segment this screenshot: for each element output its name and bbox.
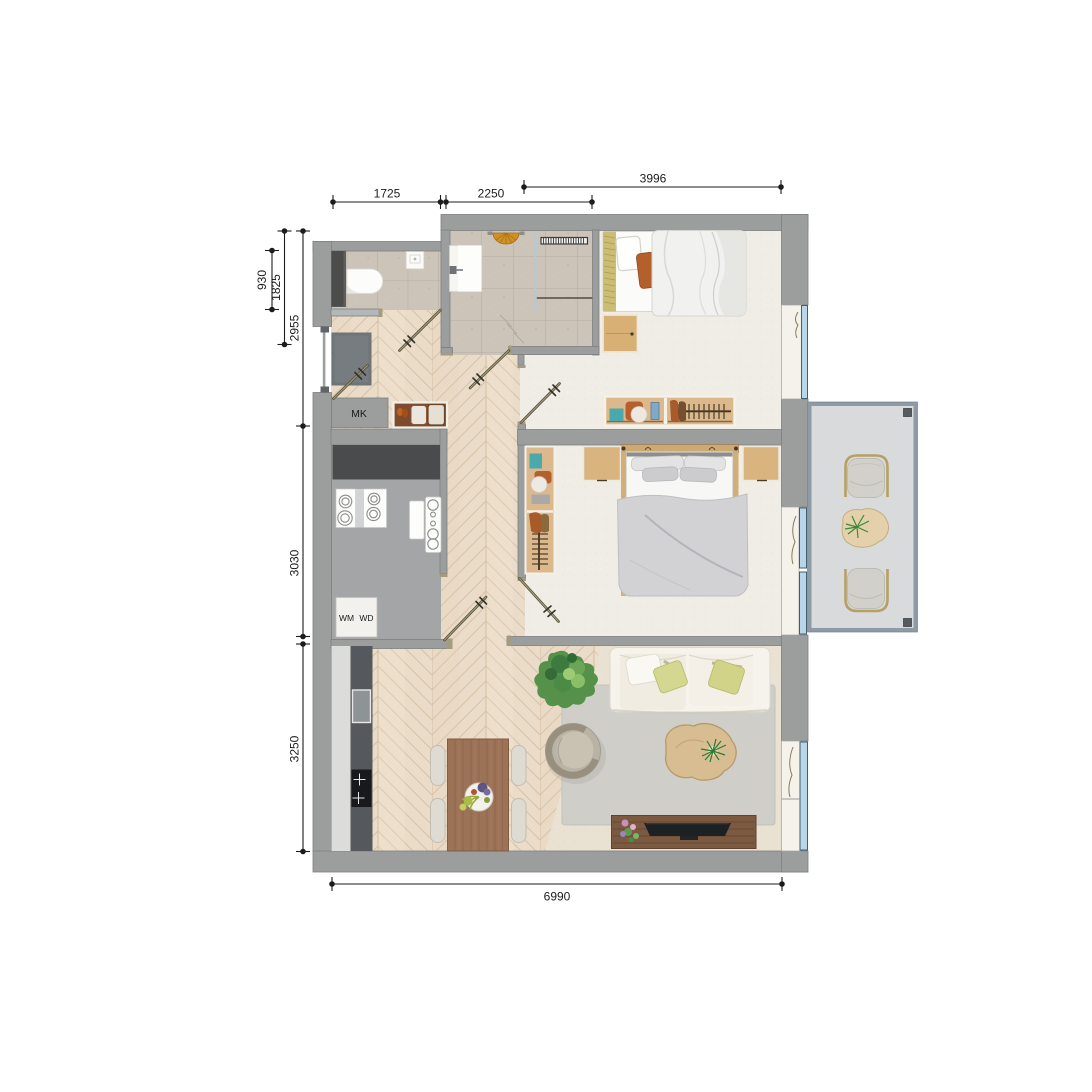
svg-text:3250: 3250 — [288, 735, 302, 762]
svg-text:3030: 3030 — [288, 549, 302, 576]
svg-text:6990: 6990 — [544, 890, 571, 904]
svg-text:3996: 3996 — [640, 172, 667, 186]
svg-text:2955: 2955 — [288, 314, 302, 341]
svg-text:MK: MK — [351, 408, 367, 420]
svg-text:2250: 2250 — [478, 187, 505, 201]
svg-text:WM: WM — [339, 613, 354, 623]
svg-text:930: 930 — [255, 270, 269, 290]
svg-text:WD: WD — [359, 613, 373, 623]
svg-text:1725: 1725 — [374, 187, 401, 201]
svg-text:1825: 1825 — [269, 274, 283, 301]
